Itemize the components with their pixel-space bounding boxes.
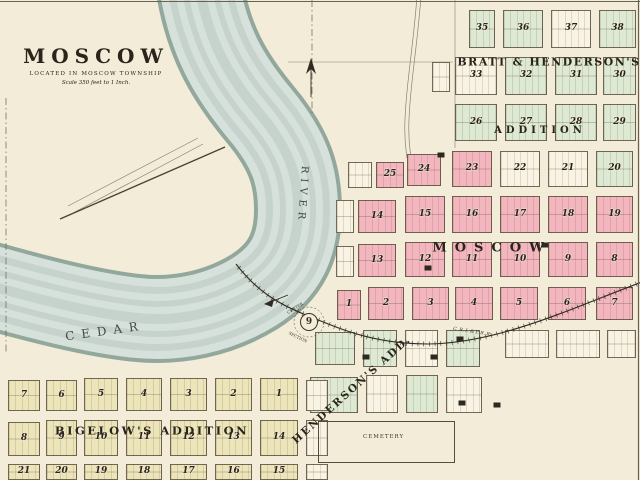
map-title-block: MOSCOW LOCATED IN MOSCOW TOWNSHIP Scale … bbox=[20, 44, 172, 86]
building-icon bbox=[431, 355, 438, 360]
building-icon bbox=[425, 266, 432, 271]
map-title: MOSCOW bbox=[20, 44, 172, 68]
map-subtitle: LOCATED IN MOSCOW TOWNSHIP bbox=[20, 71, 172, 77]
building-icon bbox=[457, 337, 464, 342]
plat-map: 3536373833323130262728292524232221201415… bbox=[0, 0, 640, 480]
map-scale: Scale 350 feet to 1 Inch. bbox=[20, 80, 172, 86]
building-icon bbox=[494, 403, 501, 408]
building-icon bbox=[542, 243, 549, 248]
building-icon bbox=[363, 355, 370, 360]
building-icon bbox=[459, 401, 466, 406]
building-icon bbox=[438, 153, 445, 158]
